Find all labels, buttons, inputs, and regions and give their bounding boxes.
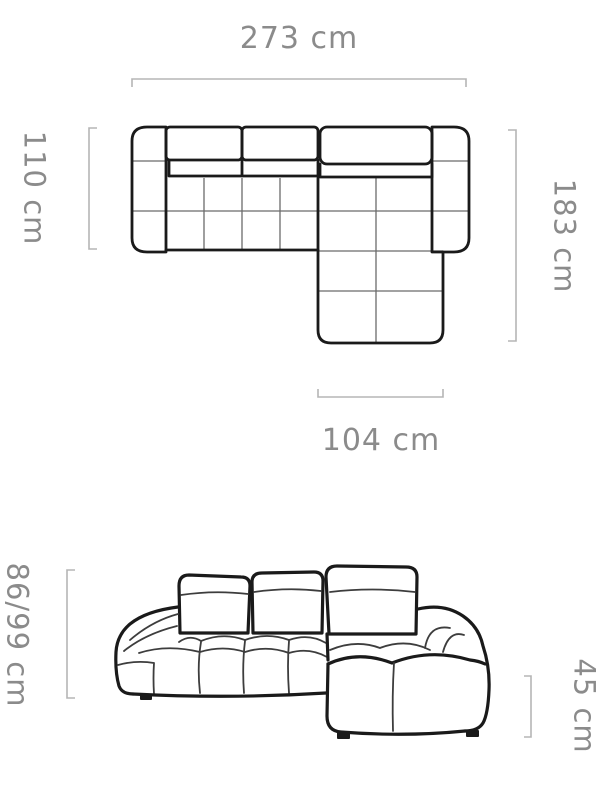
bracket-depth-110 (89, 128, 97, 249)
sofa-height-label: 86/99 cm (3, 563, 32, 708)
bracket-seat-height-45 (524, 676, 531, 737)
front-view-chaise-top (328, 655, 485, 664)
top-width-label: 273 cm (240, 24, 359, 54)
top-view-back-cushion-2 (242, 127, 318, 160)
top-view-seams (132, 161, 469, 342)
sofa-depth-label: 110 cm (20, 131, 49, 246)
front-view-headrest-1 (179, 575, 250, 633)
chaise-width-label: 104 cm (322, 426, 441, 456)
front-view-foot-left (140, 694, 152, 700)
front-view-headrest-3 (326, 566, 417, 634)
bracket-total-depth-183 (508, 130, 516, 341)
sofa-dimension-diagram: 273 cm 110 cm 183 cm 104 cm 86/99 cm 45 … (0, 0, 600, 802)
top-view-chaise-outline (318, 178, 443, 343)
sofa-front-view-drawing (116, 566, 489, 739)
top-view-left-armrest (132, 127, 166, 252)
sofa-top-view-drawing (132, 127, 469, 343)
bracket-width-273 (132, 79, 466, 87)
front-view-chaise-connector (327, 634, 328, 660)
top-view-back-cushion-3 (320, 127, 432, 164)
front-view-right-armrest-and-chaise-side (418, 607, 489, 731)
top-view-back-band (169, 160, 432, 177)
front-view-headrest-2 (252, 572, 323, 633)
front-view-seat-bump-row-2 (139, 648, 327, 657)
front-view-foot-chaise-left (337, 732, 350, 739)
top-view-right-armrest (432, 127, 469, 252)
bracket-height-8699 (67, 570, 75, 698)
front-view-seat-bottom-edge (133, 693, 326, 696)
front-view-chaise-seam (393, 663, 394, 731)
front-view-chaise-back-bumps (330, 643, 430, 650)
front-view-chaise-left-bottom (327, 664, 465, 734)
front-view-foot-chaise-right (466, 730, 479, 737)
total-depth-label: 183 cm (550, 179, 579, 294)
seat-height-label: 45 cm (570, 658, 599, 753)
top-view-back-cushion-1 (166, 127, 242, 160)
diagram-drawing (0, 0, 600, 802)
front-view-right-armrest-seams (425, 627, 464, 652)
bracket-chaise-width-104 (318, 389, 443, 397)
